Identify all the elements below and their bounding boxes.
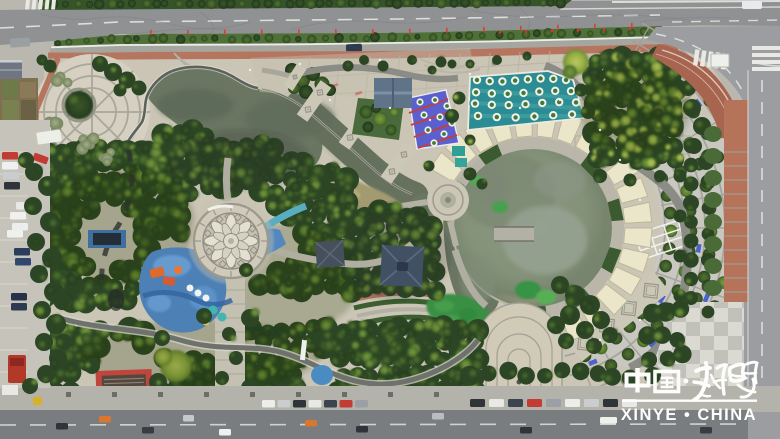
svg-text:XINYE • CHINA: XINYE • CHINA <box>621 406 757 424</box>
